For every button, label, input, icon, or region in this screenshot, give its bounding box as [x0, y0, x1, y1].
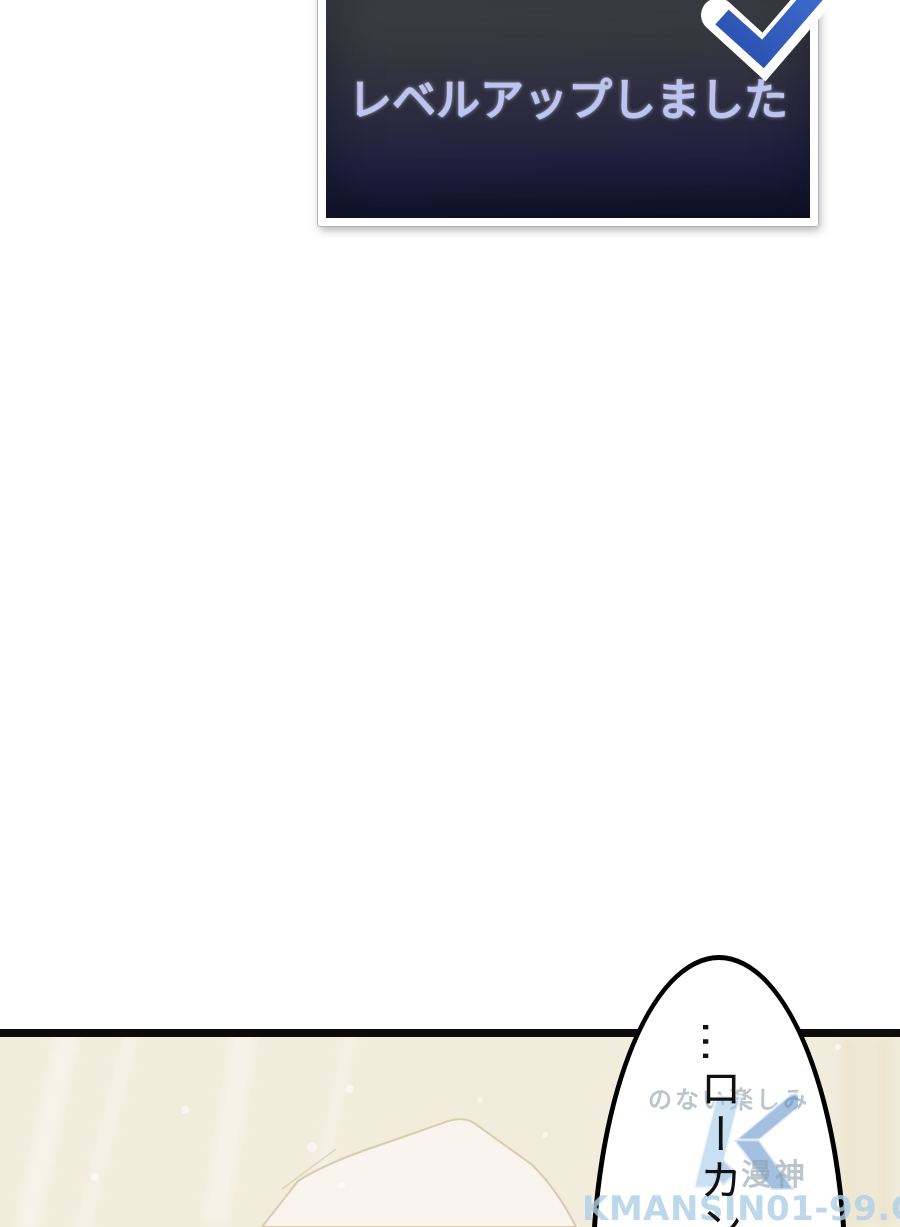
panel-grain-right — [845, 1037, 889, 1227]
manga-page: …ローカン のない楽しみ 漫神 KMANSIN01-99.COM レベルアップし… — [0, 0, 900, 1227]
speech-bubble-text: …ローカン — [694, 1020, 739, 1227]
pale-shape — [262, 1119, 576, 1227]
blue-checkmark-icon — [690, 0, 855, 95]
